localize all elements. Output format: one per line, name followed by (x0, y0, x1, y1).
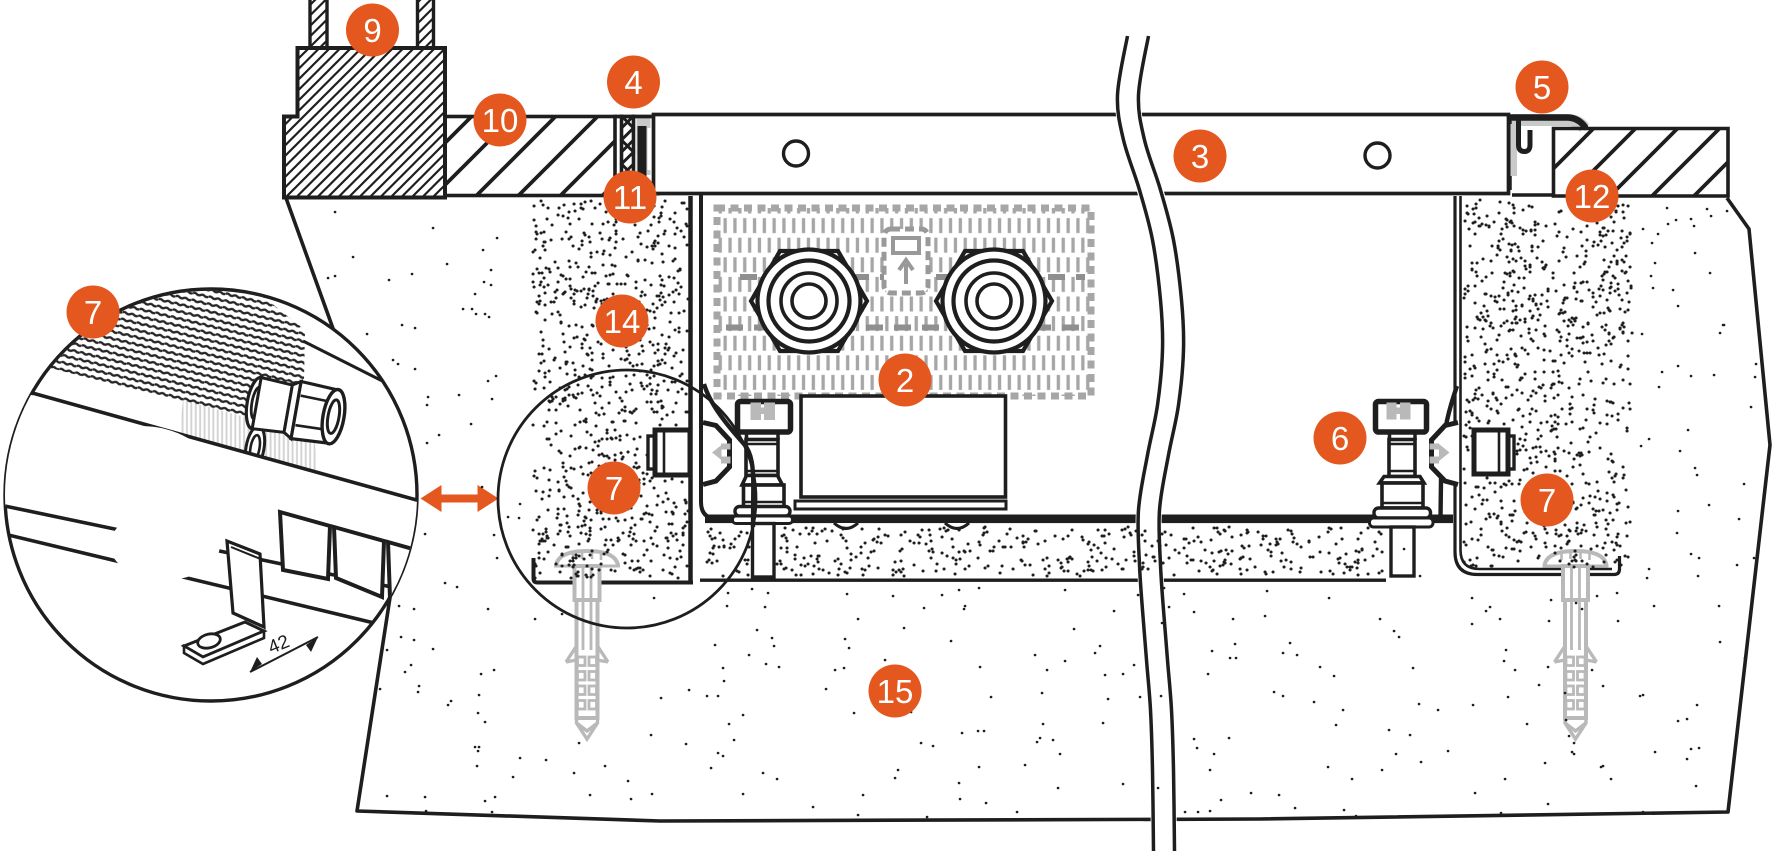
svg-text:12: 12 (1574, 178, 1611, 215)
svg-text:5: 5 (1533, 69, 1551, 106)
svg-text:7: 7 (84, 294, 102, 331)
svg-text:9: 9 (363, 12, 381, 49)
svg-text:14: 14 (604, 303, 641, 340)
svg-text:11: 11 (613, 179, 647, 216)
svg-text:6: 6 (1331, 420, 1349, 457)
svg-text:7: 7 (605, 470, 623, 507)
svg-text:4: 4 (624, 64, 642, 101)
svg-text:2: 2 (896, 362, 914, 399)
svg-text:3: 3 (1191, 138, 1209, 175)
svg-text:15: 15 (877, 673, 914, 710)
svg-text:7: 7 (1538, 482, 1556, 519)
svg-text:10: 10 (482, 102, 519, 139)
